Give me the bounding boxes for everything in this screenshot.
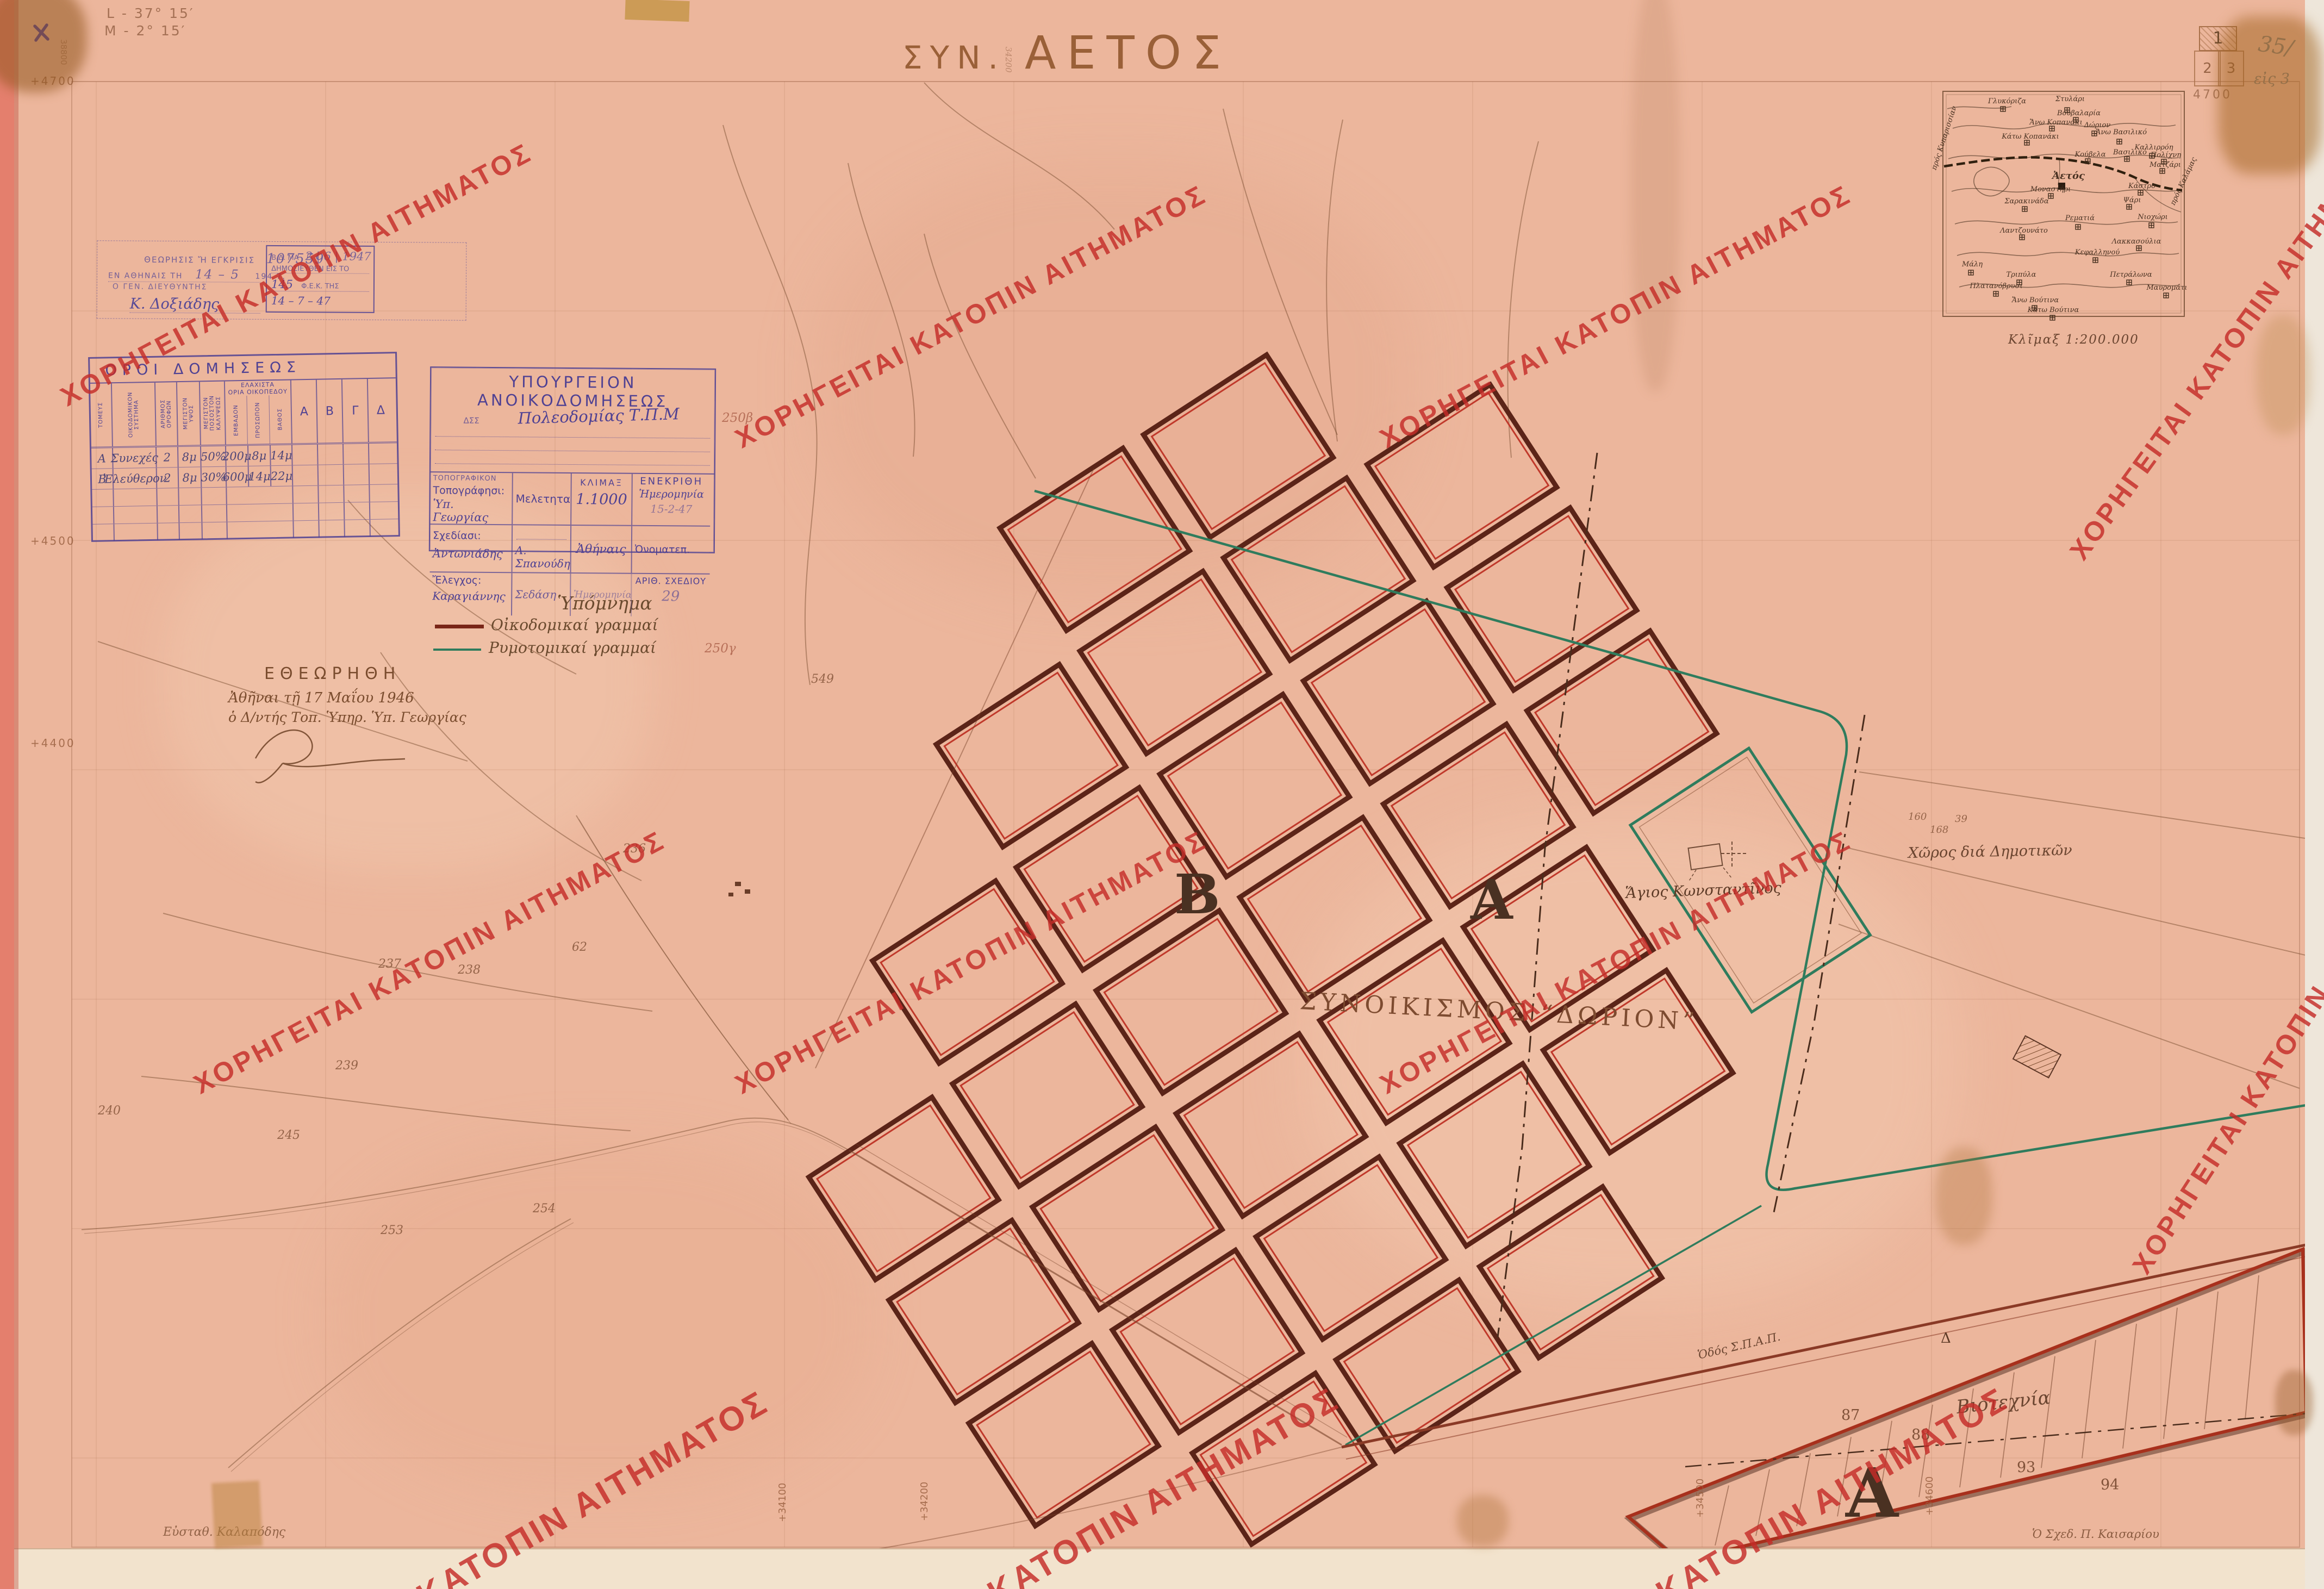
col-system: ΟΙΚΟΔΟΜΙΚΟΝ	[127, 391, 134, 438]
village-square-icon	[2149, 223, 2154, 228]
village-square-icon	[2124, 157, 2129, 161]
row-a-depth: 14μ	[271, 445, 293, 465]
church-icon	[1688, 842, 1746, 882]
grid-label-bottom: +34600	[1924, 1476, 1935, 1516]
approval-line1: ΘΕΩΡΗΣΙΣ Ἤ ΕΓΚΡΙΣΙΣ	[144, 255, 255, 265]
village-square-icon	[1968, 270, 1973, 275]
hamlet-buildings	[728, 882, 750, 896]
klimax-label: ΚΛΙΜΑΞ	[575, 477, 629, 488]
inspection-line2: ὁ Δ/ντής Τοπ. Ὑπηρ. Ὑπ. Γεωργίας	[228, 709, 500, 725]
grid-label-bottom: +34100	[777, 1483, 788, 1522]
approval-stamp: ΘΕΩΡΗΣΙΣ Ἤ ΕΓΚΡΙΣΙΣ 107559 ΕΝ ΑΘΗΝΑΙΣ ΤΗ…	[97, 240, 467, 321]
place-label: Ἀετός	[2051, 170, 2085, 182]
parcel-number: 549	[811, 672, 834, 686]
place-label: Στυλάρι	[2055, 95, 2085, 103]
tape-piece	[625, 0, 689, 22]
place-label: Σαρακινάδα	[2004, 197, 2049, 205]
designer-name: Α. Σπανούδης	[515, 544, 568, 570]
col-tomeus: ΤΟΜΕΥΣ	[98, 402, 104, 428]
map-sheet: Β Α Α ΣΥΝΟΙΚΙΣΜΟΣ “ΔΩΡΙΟΝ” Ἅγιος Κωνσταν…	[0, 0, 2324, 1589]
sheet-index-1: 1	[2199, 26, 2237, 51]
checker-name: Σεδάση	[515, 588, 556, 601]
bd-value: 2 | 6 | 1947	[306, 250, 371, 263]
street-boundary-green	[1035, 491, 2320, 1445]
gazette-box: Β.Δ. ΜΑ 2 | 6 | 1947 ΔΗΜΟΣΙΕΥΘΕΝ ΕΙΣ ΤΟ …	[266, 245, 375, 313]
margin-note-250b: 250β	[722, 411, 753, 425]
inset-scale-caption: Κλῖμαξ 1:200.000	[2008, 333, 2139, 347]
church-label: Ἅγιος Κωνσταντῖνος	[1624, 880, 1782, 902]
strip-parcel-number: 88	[1911, 1426, 1930, 1443]
place-label: Λαντζουνάτο	[1999, 227, 2048, 235]
row1-value: Ὑπ. Γεωργίας	[433, 497, 509, 524]
parcel-number: 62	[572, 940, 587, 954]
parcel-number: 240	[97, 1104, 121, 1118]
legend-building-label: Οἰκοδομικαί γραμμαί	[491, 616, 658, 634]
place-label: Πολίχνη	[2150, 151, 2181, 159]
place-label: Ἄνω Κοπανάκι	[2029, 119, 2082, 127]
row2-value: Ἀντωνιάδης	[433, 547, 509, 560]
row-a-front: 8μ	[248, 445, 271, 466]
left-edge-shadow	[14, 0, 18, 1589]
sub-front: ΠΡΟΣΩΠΟΝ	[247, 402, 269, 438]
dept-label: ΔΣΣ	[463, 416, 479, 426]
sheet-index-2: 2	[2194, 51, 2221, 86]
place-label: Τριπύλα	[2007, 271, 2036, 279]
row-b-height: 8μ	[179, 467, 202, 488]
parcel-number: 245	[277, 1129, 300, 1142]
credit-right: Ὁ Σχεδ. Π. Καισαρίου	[2032, 1528, 2159, 1541]
hatched-parcel	[2013, 1036, 2061, 1077]
street-line-swatch	[433, 649, 481, 651]
place-label: Γλυκόριζα	[1987, 97, 2026, 105]
col-height2: ΥΨΟΣ	[189, 404, 195, 422]
place-label: Κεφαλληνού	[2074, 248, 2120, 257]
delta-mark: Δ	[1941, 1330, 1951, 1347]
village-square-icon	[2024, 140, 2029, 145]
row-b-area: 600μ	[227, 466, 250, 487]
row-a-height: 8μ	[178, 446, 202, 467]
row2-label: Σχεδίασι:	[433, 529, 509, 542]
athens-value: Ἀθήναις	[576, 543, 626, 557]
col-system2: ΣΥΣΤΗΜΑ	[133, 400, 140, 429]
town-plan-map: Β Α Α ΣΥΝΟΙΚΙΣΜΟΣ “ΔΩΡΙΟΝ” Ἅγιος Κωνσταν…	[0, 0, 2324, 1589]
parcel-number: 237	[378, 957, 401, 971]
village-square-icon	[2164, 293, 2169, 298]
parcel-numbers: 2362372382396254924024525325439160168	[97, 672, 1967, 1237]
place-label: Κάστρο	[2128, 182, 2155, 190]
row3-value: Καραγιάννης	[432, 589, 508, 603]
row-a-system: Συνεχές	[113, 447, 157, 468]
strip-parcel-number: 87	[1841, 1407, 1860, 1424]
inspection-line1: Ἀθῆναι τῇ 17 Μαΐου 1946	[228, 690, 500, 706]
village-square-icon	[2136, 246, 2141, 251]
latitude-note: L - 37° 15′	[107, 5, 195, 21]
fek-date: 14 – 7 – 47	[271, 294, 331, 308]
parcel-number: 168	[1930, 824, 1948, 836]
parcel-number: 254	[532, 1202, 556, 1216]
group-header3: ΟΙΚΟΠΕΔΟΥ	[247, 388, 288, 395]
onomat-label: Ὀνοματεπ.	[635, 544, 690, 556]
place-label: πρός Κυπαρισσίαν	[1930, 105, 1958, 171]
village-square-icon	[2093, 258, 2098, 263]
inset-place-names: ΓλυκόριζαΣτυλάριΒουβαλαρίαἌνω ΚοπανάκιΚά…	[1930, 95, 2198, 314]
industry-label: Βιοτεχνία	[1955, 1387, 2052, 1418]
village-square-icon	[2127, 204, 2132, 209]
fek-number: 145	[271, 278, 293, 291]
plan-no-value: 29	[634, 588, 707, 605]
row-a-floors: 2	[157, 447, 179, 468]
place-label: Μάλη	[1961, 260, 1983, 269]
sub-depth: ΒΑΘΟΣ	[269, 408, 291, 431]
parcel-number: 238	[457, 963, 481, 977]
place-label: Μοναστήρι	[2030, 185, 2071, 194]
approval-line2: ΕΝ ΑΘΗΝΑΙΣ ΤΗ	[108, 271, 183, 281]
col-floors2: ΟΡΟΦΩΝ	[166, 400, 172, 428]
topo-label: ΤΟΠΟΓΡΑΦΙΚΟΝ	[433, 474, 509, 483]
village-square-icon	[2020, 235, 2024, 240]
inspector-signature	[256, 730, 405, 783]
published-label: ΔΗΜΟΣΙΕΥΘΕΝ ΕΙΣ ΤΟ	[271, 265, 369, 274]
place-label: Καλλιρρόη	[2134, 144, 2173, 152]
klimax-value: 1.1000	[574, 491, 628, 508]
village-square-icon	[2022, 207, 2027, 211]
sector-a2-label: Α	[1845, 1454, 1899, 1533]
parcel-number: 236	[622, 842, 646, 856]
sheet-index-3: 3	[2218, 51, 2244, 86]
row-b-system: Ἐλεύθερον	[114, 468, 158, 489]
place-label: Πετράλωνα	[2109, 271, 2152, 279]
col-height: ΜΕΓΙΣΤΟΝ	[182, 397, 189, 429]
vertical-coord-note: 38800	[59, 39, 68, 65]
parcel-number: 160	[1908, 811, 1927, 822]
place-label: Λακκασούλια	[2111, 238, 2161, 246]
imerom-label: Ἡμερομηνία	[574, 589, 632, 601]
melet-label: Μελετηταί	[515, 492, 571, 506]
grid-label-bottom: +34200	[919, 1482, 930, 1521]
parcel-number: 253	[380, 1224, 403, 1237]
place-label: Κάτω Κοπανάκι	[2001, 133, 2059, 141]
bd-label: Β.Δ. ΜΑ	[271, 254, 298, 262]
strip-parcel-number: 93	[2017, 1459, 2035, 1476]
building-blocks	[569, 261, 1949, 1589]
col-cover2: ΠΟΣΟΣΤΟΝ	[209, 395, 216, 431]
strip-parcel-number: 94	[2101, 1476, 2119, 1493]
row1-label: Τοπογράφησι:	[433, 484, 509, 497]
fek-label: Φ.Ε.Κ. ΤΗΣ	[301, 282, 339, 290]
place-label: Ψάρι	[2123, 196, 2141, 204]
grid-label-left: +4700	[30, 74, 76, 88]
zone-d: Δ	[368, 378, 394, 442]
dept-value: Πολεοδομίας Τ.Π.Μ	[518, 404, 680, 427]
group-header2: ΟΡΙΑ	[228, 389, 244, 396]
sheet-index-coord: 4700	[2193, 88, 2232, 102]
place-label: Νιοχώρι	[2137, 213, 2168, 221]
parcel-number: 39	[1955, 813, 1967, 825]
x-mark-icon	[35, 25, 48, 40]
title-name: ΑΕΤΟΣ	[1025, 26, 1232, 79]
approval-date: 14 – 5	[195, 267, 240, 282]
sub-area: ΕΜΒΑΔΟΝ	[226, 404, 247, 437]
place-label: Ματζάρι	[2149, 161, 2181, 169]
pencil-note-eis3: εἰς 3	[2254, 71, 2290, 88]
grid-label-left: +4500	[30, 534, 76, 547]
grid-label-left: +4400	[30, 737, 76, 750]
zone-a: Α	[291, 380, 318, 444]
village-square-icon	[2048, 194, 2053, 198]
building-line-swatch	[435, 625, 484, 628]
zone-c: Γ	[342, 379, 369, 443]
place-label: Βουβαλαρία	[2057, 109, 2101, 117]
inspection-title: ΕΘΕΩΡΗΘΗ	[264, 664, 500, 683]
approved-label: ΕΝΕΚΡΙΘΗ	[635, 476, 708, 488]
longitude-note: M - 2° 15′	[104, 23, 186, 39]
row-a-area: 200μ	[226, 446, 249, 466]
ministry-box: ΥΠΟΥΡΓΕΙΟΝ ΑΝΟΙΚΟΔΟΜΗΣΕΩΣ ΔΣΣ Πολεοδομία…	[429, 366, 716, 553]
municipal-area-label: Χῶρος διά Δημοτικῶν	[1907, 842, 2072, 862]
inset-map: ΓλυκόριζαΣτυλάριΒουβαλαρίαἌνω ΚοπανάκιΚά…	[1930, 91, 2198, 347]
inspection-note: ΕΘΕΩΡΗΘΗ Ἀθῆναι τῇ 17 Μαΐου 1946 ὁ Δ/ντή…	[228, 664, 500, 725]
building-terms-table: ΟΡΟΙ ΔΟΜΗΣΕΩΣ ΤΟΜΕΥΣ ΟΙΚΟΔΟΜΙΚΟΝΣΥΣΤΗΜΑ …	[88, 352, 400, 542]
village-square-icon	[2076, 225, 2080, 229]
right-backing-strip	[2305, 0, 2324, 1589]
approval-line3: Ο ΓΕΝ. ΔΙΕΥΘΥΝΤΗΣ	[113, 282, 208, 291]
plan-no-label: ΑΡΙΘ. ΣΧΕΔΙΟΥ	[634, 576, 707, 587]
row-b-floors: 2	[157, 468, 179, 488]
sector-a-label: Α	[1470, 868, 1513, 932]
parcel-number: 239	[335, 1059, 358, 1073]
col-cover3: ΚΑΛΥΨΕΩΣ	[215, 396, 222, 430]
row3-label: Ἔλεγχος:	[432, 574, 508, 587]
row-b-front: 14μ	[249, 466, 272, 487]
place-label: Ρεματιά	[2065, 214, 2095, 222]
grid-label-bottom: +34500	[1694, 1479, 1706, 1518]
left-paper-edge	[0, 0, 14, 1589]
place-label: Μαυρομάτι	[2146, 284, 2188, 292]
pencil-note-35: 35/	[2257, 32, 2295, 61]
date-label: Ἡμερομηνία	[635, 488, 707, 501]
village-square-icon	[2138, 190, 2143, 195]
legend-street-label: Ρυμοτομικαί γραμμαί	[489, 639, 656, 657]
place-label: Κούβελα	[2074, 151, 2106, 159]
row-b-depth: 22μ	[271, 465, 294, 486]
place-label: Ἄνω Βούτινα	[2011, 296, 2059, 304]
village-square-icon	[1993, 291, 1998, 296]
village-square-icon	[2117, 139, 2122, 144]
sheet-title: ΣΥΝ. ΑΕΤΟΣ	[902, 26, 1232, 79]
approval-signature: Κ. Δοξιάδης	[130, 296, 260, 314]
zone-b: Β	[317, 379, 344, 443]
place-label: Πλατανόβρυσι	[1969, 282, 2022, 290]
place-label: Ἄνω Βασιλικό	[2095, 128, 2147, 136]
sheet-index: 1 2 3 4700 35/ εἰς 3	[2193, 24, 2323, 111]
sector-b-label: Β	[1174, 862, 1220, 926]
title-prefix: ΣΥΝ.	[902, 39, 1006, 76]
col-floors: ΑΡΙΘΜΟΣ	[160, 400, 166, 429]
tape-piece	[211, 1481, 263, 1548]
date-value: 15-2-47	[635, 502, 707, 516]
sector-boundary	[1498, 453, 2320, 1467]
place-label: Κάτω Βούτινα	[2027, 306, 2079, 314]
village-square-icon	[2127, 280, 2132, 285]
plan-labels: Β Α Α ΣΥΝΟΙΚΙΣΜΟΣ “ΔΩΡΙΟΝ” Ἅγιος Κωνσταν…	[1174, 842, 2072, 1533]
bottom-backing-strip	[0, 1548, 2324, 1589]
village-square-icon	[2049, 126, 2054, 131]
